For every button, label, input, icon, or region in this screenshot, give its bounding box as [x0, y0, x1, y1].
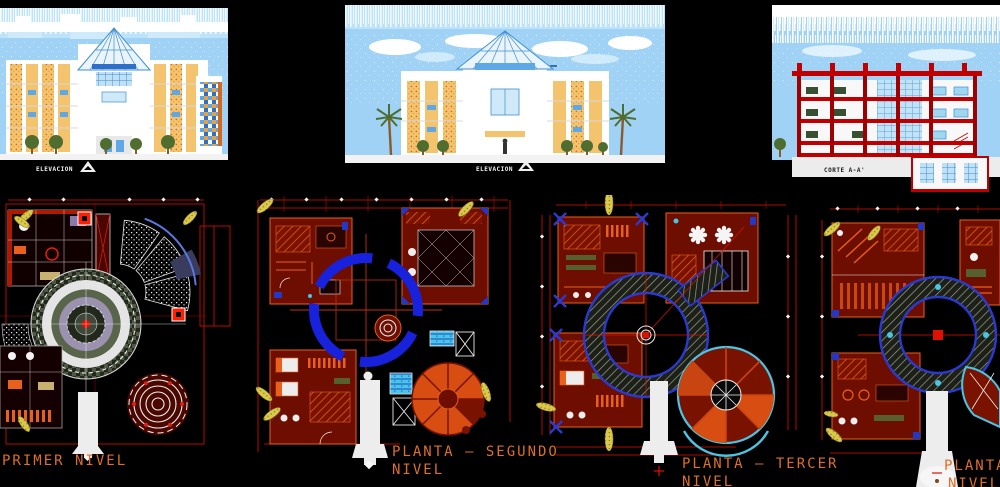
round-terrace [678, 347, 774, 456]
basement-section [912, 157, 988, 192]
plan-second-label-line2: NIVEL [392, 462, 444, 478]
plan-third-level [536, 195, 804, 483]
elevation-center-drawing [345, 5, 665, 163]
ground-line [345, 155, 665, 163]
elevation-marker-icon [518, 160, 534, 171]
elevation-marker-icon [80, 161, 96, 172]
building-left-wing [401, 71, 463, 157]
dimension-markers [27, 197, 199, 201]
ground-line [0, 154, 228, 160]
block-bottom-left [270, 350, 356, 444]
plan-fourth-level [798, 195, 1000, 487]
plan-fourth-label-line1: PLANTA [944, 458, 1000, 474]
elevation-center-label: ELEVACION [476, 166, 513, 173]
tree [774, 138, 786, 150]
terrace-partial [962, 367, 1000, 427]
plan-first-label: PRIMER NIVEL [2, 453, 127, 469]
building-center-tower [78, 28, 150, 156]
section-label: CORTE A-A' [824, 167, 865, 174]
building-left-wing [6, 60, 78, 156]
plan-second-label-line1: PLANTA – SEGUNDO [392, 444, 559, 460]
entry-canopy [485, 131, 525, 137]
elevation-left-drawing [0, 8, 228, 160]
person [503, 143, 507, 154]
plan-second-level [250, 192, 518, 470]
dimension-markers [269, 197, 483, 201]
building-side-annex [196, 76, 222, 156]
cad-sheet: ELEVACION [0, 0, 1000, 487]
spiral-stair [127, 373, 189, 435]
terrace-fan [412, 363, 486, 435]
entrance-ramp [72, 392, 104, 461]
rooms-bottom-left [0, 346, 62, 428]
spiral-stair [375, 315, 401, 341]
section-drawing: CORTE A-A' [772, 5, 1000, 195]
plan-fourth-label-line2: NIVEL [948, 476, 1000, 487]
elevation-left-label: ELEVACION [36, 166, 73, 173]
plan-third-label-line2: NIVEL [682, 474, 734, 487]
entrance-ramp [352, 372, 388, 470]
plan-first-level [0, 196, 236, 462]
